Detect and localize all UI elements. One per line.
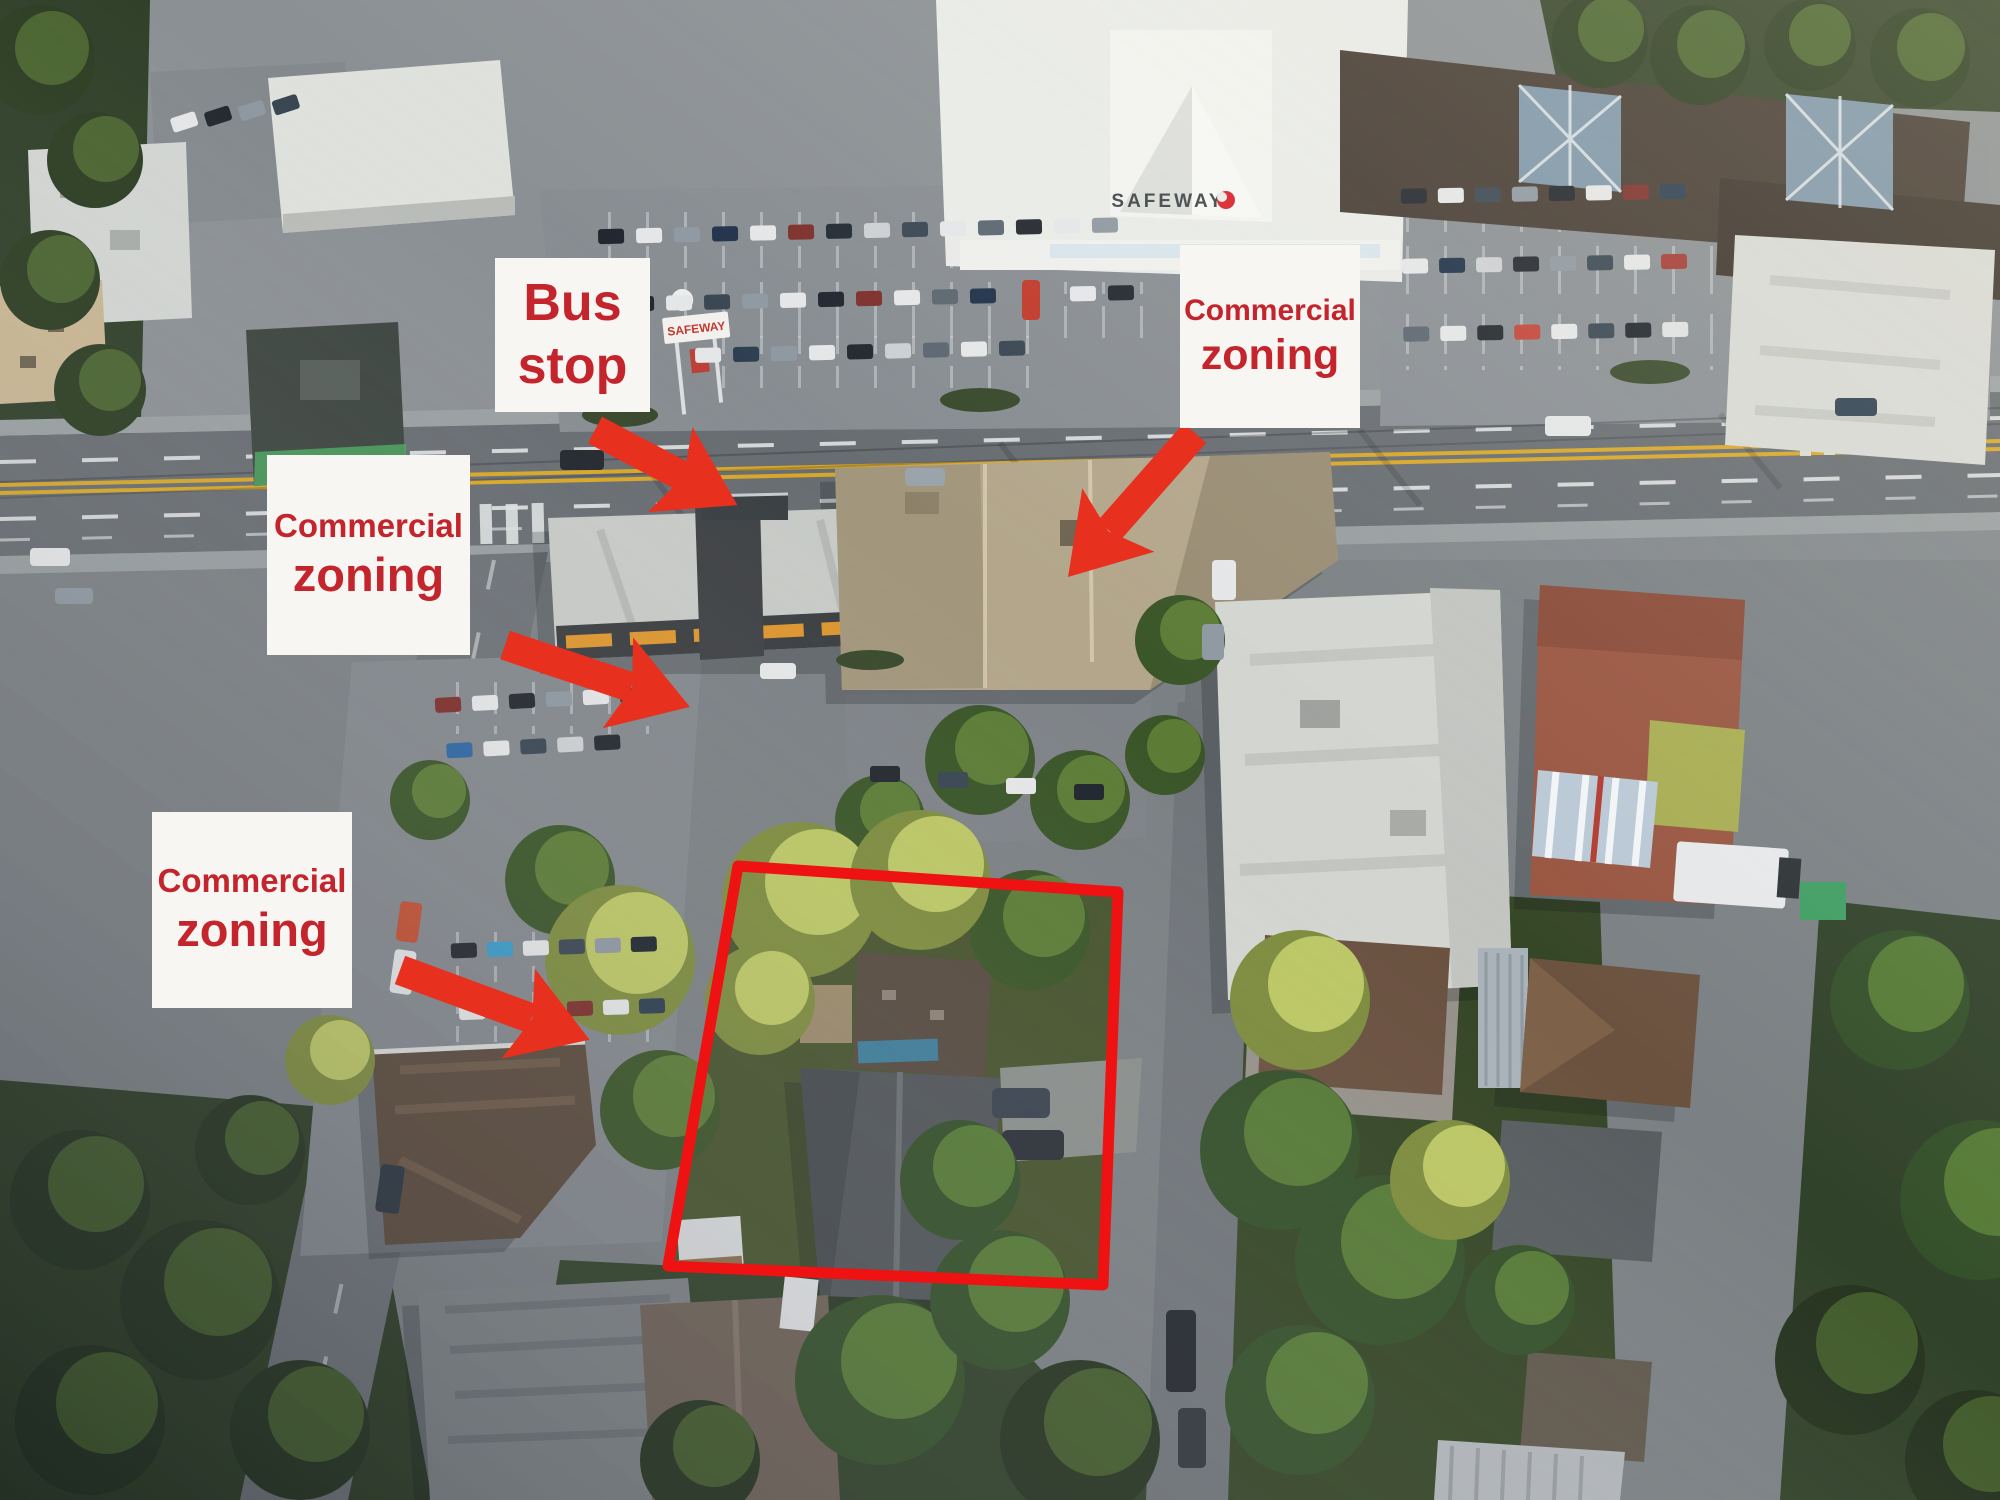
bus-stop-label: Bus stop <box>495 258 650 412</box>
zoning-left-line1: Commercial <box>274 508 463 545</box>
bus-stop-label-line1: Bus <box>523 274 621 333</box>
zoning-left-line2: zoning <box>293 549 444 602</box>
aerial-scene: SAFEWAY <box>0 0 2000 1500</box>
zoning-label-top-right: Commercial zoning <box>1180 245 1360 428</box>
bus-stop-label-line2: stop <box>518 337 628 396</box>
zoning-label-bottom-left: Commercial zoning <box>152 812 352 1008</box>
zoning-label-left: Commercial zoning <box>267 455 470 655</box>
zoning-bottom-line1: Commercial <box>158 863 347 900</box>
aerial-photo: SAFEWAY <box>0 0 2000 1500</box>
zoning-top-line2: zoning <box>1201 331 1340 379</box>
zoning-bottom-line2: zoning <box>176 904 327 957</box>
zoning-top-line1: Commercial <box>1184 294 1356 328</box>
